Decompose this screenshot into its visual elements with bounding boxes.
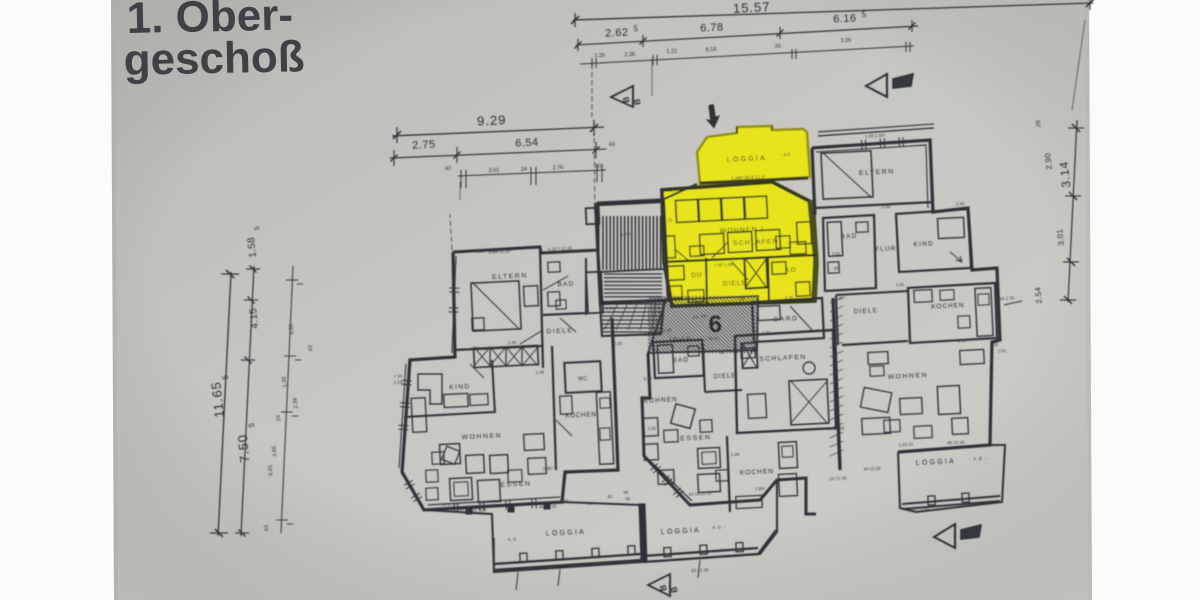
svg-text:1.01: 1.01 <box>998 348 1007 353</box>
svg-text:2.39: 2.39 <box>508 340 517 345</box>
svg-text:44: 44 <box>563 498 569 503</box>
svg-text:2.85⁵: 2.85⁵ <box>543 466 554 472</box>
svg-text:43: 43 <box>308 345 315 352</box>
svg-text:1.50 31: 1.50 31 <box>822 144 837 150</box>
svg-text:1.79⁵: 1.79⁵ <box>621 232 632 238</box>
svg-text:44 12 26: 44 12 26 <box>863 466 881 472</box>
svg-text:40: 40 <box>719 350 725 355</box>
svg-text:6.78: 6.78 <box>700 21 724 34</box>
svg-text:- 4.5 -: - 4.5 - <box>781 152 794 159</box>
svg-text:.26: .26 <box>1036 119 1043 129</box>
svg-text:1.26: 1.26 <box>956 201 965 206</box>
svg-text:1.50 31: 1.50 31 <box>898 442 913 448</box>
svg-text:43: 43 <box>445 166 451 172</box>
svg-text:- 4.0 -: - 4.0 - <box>708 525 726 532</box>
svg-text:2.35: 2.35 <box>688 298 697 303</box>
svg-text:1.39 LC: 1.39 LC <box>704 336 720 342</box>
svg-text:1.01: 1.01 <box>648 426 657 431</box>
svg-text:1.38: 1.38 <box>281 376 288 387</box>
svg-text:93 12 26: 93 12 26 <box>691 568 709 574</box>
svg-text:1.38 1.30⁵: 1.38 1.30⁵ <box>865 132 886 138</box>
svg-text:7.89⁵: 7.89⁵ <box>755 486 766 492</box>
svg-text:1.26: 1.26 <box>394 380 403 385</box>
svg-text:44 12.26: 44 12.26 <box>827 426 845 432</box>
svg-text:29: 29 <box>739 296 745 301</box>
svg-text:9.29: 9.29 <box>477 112 507 128</box>
svg-text:4.55: 4.55 <box>288 324 295 335</box>
svg-text:6.16: 6.16 <box>833 12 857 25</box>
svg-text:+ 26: + 26 <box>393 374 402 379</box>
svg-text:2.90: 2.90 <box>1043 152 1054 170</box>
svg-text:2.28: 2.28 <box>614 341 623 346</box>
svg-text:1.01: 1.01 <box>896 282 905 287</box>
svg-text:2.62: 2.62 <box>605 26 629 39</box>
svg-text:2.39: 2.39 <box>293 398 300 409</box>
svg-text:6: 6 <box>708 311 723 339</box>
svg-text:2.36: 2.36 <box>624 52 635 59</box>
svg-text:15.71 26: 15.71 26 <box>911 506 929 512</box>
svg-text:1.7⁵: 1.7⁵ <box>762 330 770 335</box>
svg-text:2.39: 2.39 <box>536 370 545 375</box>
svg-text:DIELE: DIELE <box>546 327 573 335</box>
svg-text:4.15: 4.15 <box>248 307 261 329</box>
svg-text:BAD: BAD <box>672 357 689 365</box>
svg-text:3.26: 3.26 <box>840 38 851 45</box>
svg-text:2.54: 2.54 <box>1033 286 1044 304</box>
svg-text:2.39: 2.39 <box>882 204 891 209</box>
svg-text:10.32 26: 10.32 26 <box>654 328 672 334</box>
svg-text:1.26 1.76: 1.26 1.76 <box>996 296 1015 302</box>
svg-text:26: 26 <box>775 44 781 50</box>
svg-text:BAD: BAD <box>557 281 574 289</box>
svg-text:80: 80 <box>607 494 613 499</box>
svg-text:1.01: 1.01 <box>958 338 967 343</box>
svg-text:geschoß: geschoß <box>123 32 305 85</box>
svg-text:86: 86 <box>623 490 629 495</box>
svg-text:+ 10³ 1.48⁵: + 10³ 1.48⁵ <box>714 262 735 268</box>
svg-text:3.01: 3.01 <box>1055 228 1066 246</box>
svg-text:24: 24 <box>276 415 283 422</box>
svg-text:WC: WC <box>578 376 588 382</box>
svg-text:FLUR: FLUR <box>875 245 897 253</box>
svg-text:1.58: 1.58 <box>246 236 259 258</box>
svg-text:1.48: 1.48 <box>731 452 740 457</box>
svg-text:15.71 26: 15.71 26 <box>829 476 847 482</box>
svg-text:- 1.9 -: - 1.9 - <box>969 456 987 463</box>
svg-text:4.65: 4.65 <box>272 445 279 456</box>
svg-text:DIELE: DIELE <box>713 372 736 380</box>
svg-text:KIND: KIND <box>913 241 934 249</box>
svg-text:10.38: 10.38 <box>693 314 708 320</box>
svg-text:43: 43 <box>264 525 271 532</box>
svg-text:24: 24 <box>521 167 527 173</box>
svg-text:1.21: 1.21 <box>666 49 677 56</box>
svg-text:DIELE: DIELE <box>854 307 879 315</box>
svg-text:43: 43 <box>609 142 615 148</box>
svg-text:7.01: 7.01 <box>832 251 841 256</box>
svg-text:6.54: 6.54 <box>515 136 539 149</box>
svg-text:8.18: 8.18 <box>705 47 716 54</box>
svg-text:89 72 26: 89 72 26 <box>947 440 965 446</box>
svg-text:7.50: 7.50 <box>235 434 253 464</box>
svg-text:3.01: 3.01 <box>488 168 499 175</box>
svg-text:3.14: 3.14 <box>1057 160 1074 188</box>
svg-text:2.76: 2.76 <box>552 165 563 172</box>
svg-text:3.47⁵: 3.47⁵ <box>835 296 846 302</box>
svg-text:- 4.0: - 4.0 <box>503 537 517 544</box>
svg-text:1.26: 1.26 <box>990 342 999 347</box>
svg-text:3.77: 3.77 <box>644 376 653 381</box>
svg-text:DIELE: DIELE <box>723 279 747 287</box>
svg-text:1.75: 1.75 <box>664 218 673 223</box>
svg-text:KIND: KIND <box>449 383 471 391</box>
svg-text:86: 86 <box>625 496 631 501</box>
svg-text:44: 44 <box>587 501 593 506</box>
svg-text:M 7.7 26: M 7.7 26 <box>539 504 557 510</box>
svg-text:5: 5 <box>254 226 261 231</box>
svg-text:2.79: 2.79 <box>471 346 480 351</box>
svg-text:2.75: 2.75 <box>412 138 436 151</box>
svg-text:6.01: 6.01 <box>267 465 274 476</box>
svg-text:1.94: 1.94 <box>605 306 614 311</box>
svg-text:3.77: 3.77 <box>644 332 653 337</box>
svg-text:26: 26 <box>833 266 839 271</box>
svg-text:BAD: BAD <box>840 233 857 241</box>
svg-text:DU: DU <box>691 272 703 280</box>
svg-text:10.17 26: 10.17 26 <box>441 502 459 508</box>
svg-text:30: 30 <box>595 164 601 170</box>
svg-text:KO: KO <box>785 267 797 275</box>
